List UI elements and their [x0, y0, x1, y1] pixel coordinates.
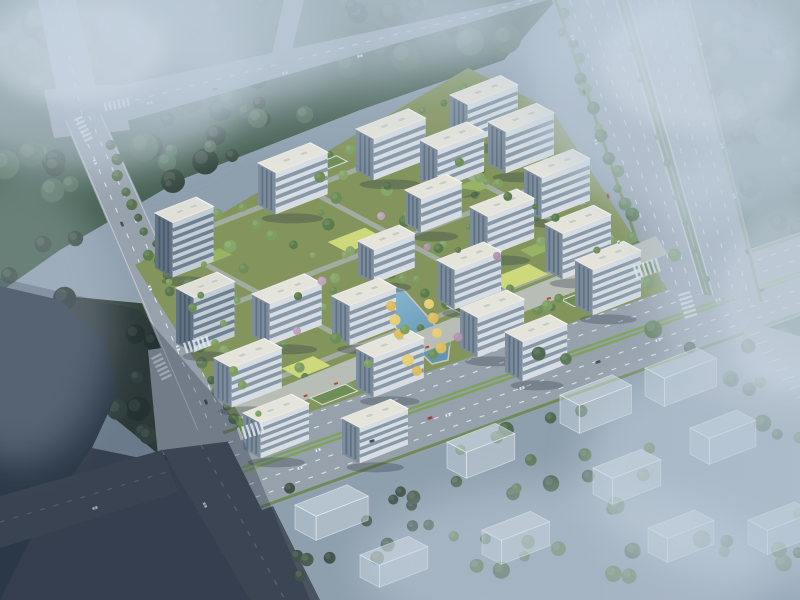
aerial-rendering-stage	[0, 0, 800, 600]
aerial-site-rendering-image	[0, 0, 800, 600]
mist-layer	[0, 0, 800, 600]
color-cast	[0, 0, 800, 600]
